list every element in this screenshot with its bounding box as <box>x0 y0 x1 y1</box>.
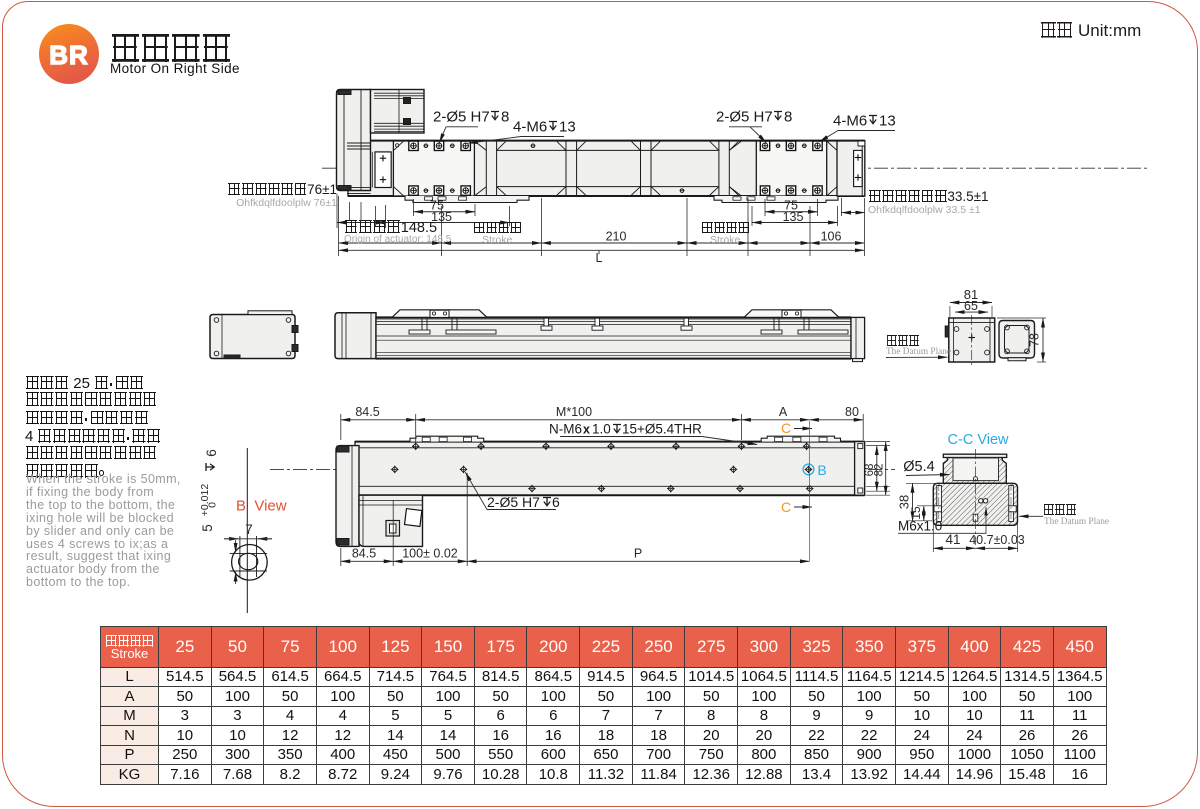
svg-text:84.5: 84.5 <box>352 547 376 561</box>
svg-text:B View: B View <box>236 498 287 515</box>
svg-text:7: 7 <box>245 522 253 537</box>
svg-text:2-Ø5 H7: 2-Ø5 H7 <box>433 109 490 126</box>
svg-text:135: 135 <box>783 210 804 224</box>
svg-text:8: 8 <box>784 109 792 126</box>
svg-text:M*100: M*100 <box>556 405 592 419</box>
svg-text:C: C <box>781 420 791 436</box>
svg-text:100± 0.02: 100± 0.02 <box>402 547 458 561</box>
svg-text:84.5: 84.5 <box>355 405 379 419</box>
svg-text:0: 0 <box>207 502 219 508</box>
svg-text:80: 80 <box>845 405 859 419</box>
svg-text:15+Ø5.4THR: 15+Ø5.4THR <box>622 422 702 437</box>
svg-text:41: 41 <box>945 532 960 547</box>
svg-text:5: 5 <box>200 524 215 532</box>
svg-text:13: 13 <box>879 113 896 130</box>
svg-text:Ø5.4: Ø5.4 <box>903 459 934 475</box>
svg-text:78: 78 <box>1028 333 1042 347</box>
svg-text:82: 82 <box>873 464 885 477</box>
svg-text:1.0: 1.0 <box>592 422 611 437</box>
svg-text:x: x <box>583 423 590 437</box>
svg-text:L: L <box>596 251 603 265</box>
svg-text:40.7±0.03: 40.7±0.03 <box>969 533 1025 547</box>
svg-text:2-Ø5 H7: 2-Ø5 H7 <box>487 494 540 510</box>
svg-text:4-M6: 4-M6 <box>513 119 547 136</box>
svg-text:C: C <box>781 499 791 515</box>
svg-text:6: 6 <box>204 449 219 457</box>
svg-text:65: 65 <box>964 299 978 313</box>
svg-text:6: 6 <box>552 494 560 510</box>
svg-text:P: P <box>634 547 642 561</box>
svg-text:M6x1.0: M6x1.0 <box>898 519 942 534</box>
svg-text:2-Ø5 H7: 2-Ø5 H7 <box>716 109 773 126</box>
svg-text:210: 210 <box>606 229 627 243</box>
svg-text:4-M6: 4-M6 <box>833 113 867 130</box>
svg-text:B: B <box>817 462 826 478</box>
svg-text:N-M6: N-M6 <box>549 422 582 437</box>
svg-text:C-C View: C-C View <box>948 432 1009 448</box>
svg-text:A: A <box>779 405 788 419</box>
svg-text:8: 8 <box>501 109 509 126</box>
svg-text:13: 13 <box>559 119 576 136</box>
svg-text:106: 106 <box>821 229 842 243</box>
